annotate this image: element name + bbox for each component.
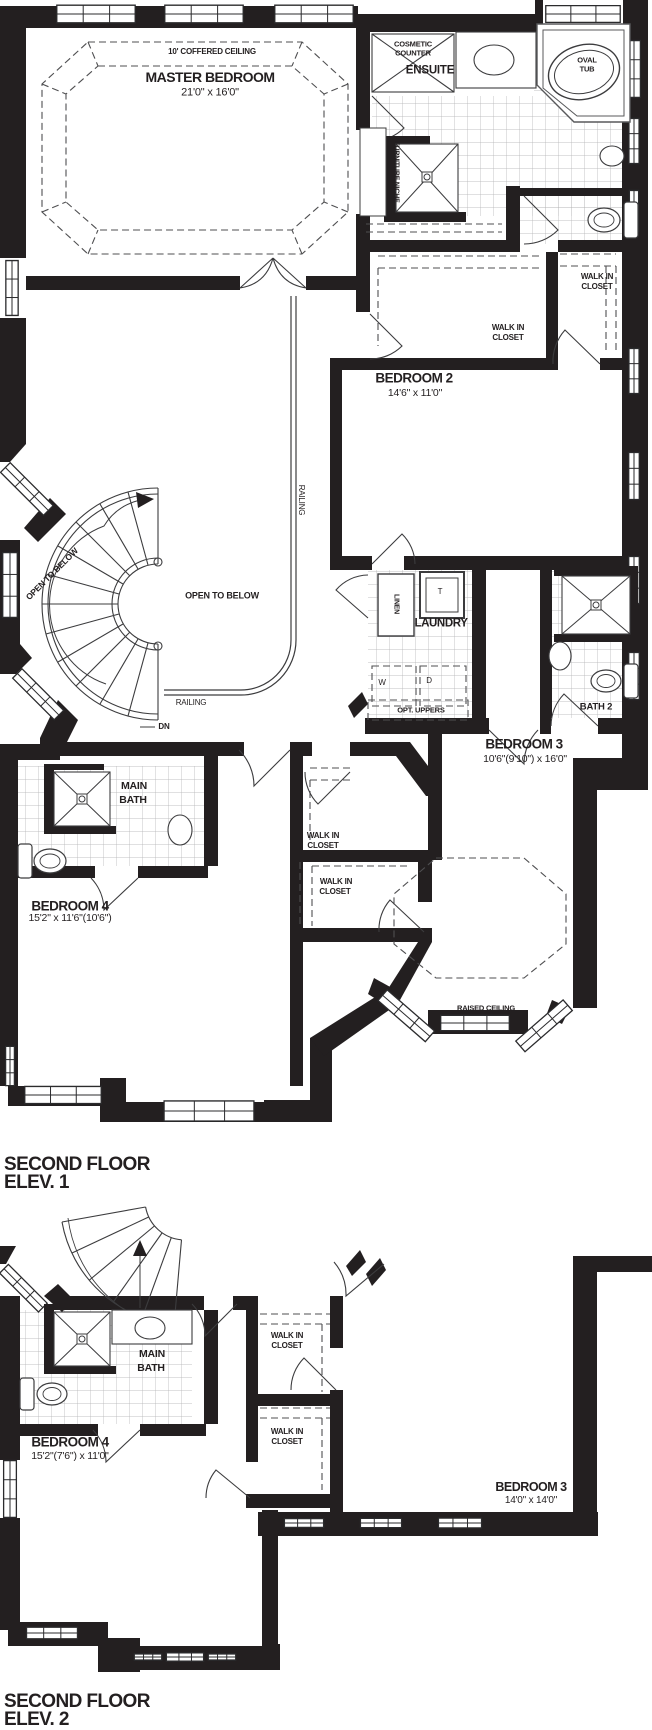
down-label: DN	[158, 723, 169, 731]
wic2-door	[206, 1470, 250, 1498]
dryer-label: D	[426, 677, 432, 685]
bath2-shower	[554, 566, 638, 642]
walk-in-closet-label: WALK IN	[271, 1428, 303, 1436]
main-bath2-vanity	[112, 1310, 192, 1344]
walk-in-closet-label: WALK IN	[581, 273, 613, 281]
walk-in-closet-label: CLOSET	[307, 842, 338, 850]
walk-in-closet-label: CLOSET	[581, 283, 612, 291]
cosmetic-counter-label: COUNTER	[395, 49, 431, 57]
main-bath-label: MAIN	[121, 781, 147, 792]
laundry-label: LAUNDRY	[415, 618, 468, 630]
railing-label: RAILING	[297, 485, 305, 516]
sink-icon	[168, 815, 192, 845]
laundry-tub-label: T	[438, 588, 443, 596]
cosmetic-counter-label: COSMETIC	[394, 40, 432, 48]
sink-icon	[474, 45, 514, 75]
main-bath-shower	[44, 764, 116, 834]
furniture-niche-label: FURNITURE NICHE	[393, 141, 400, 202]
bedroom4-door	[239, 750, 290, 786]
sink-icon	[135, 1317, 165, 1339]
open-to-below-label: OPEN TO BELOW	[185, 592, 259, 601]
opt-uppers-label: OPT. UPPERS	[397, 706, 444, 714]
wic1-door	[291, 1358, 336, 1390]
walk-in-closet-label: WALK IN	[492, 324, 524, 332]
bedroom4-dims: 15'2"(7'6") x 11'0"	[31, 1451, 108, 1462]
plan1-drawing	[0, 0, 648, 1122]
coffered-ceiling-label: 10' COFFERED CEILING	[168, 48, 256, 56]
walk-in-closet-label: CLOSET	[271, 1342, 302, 1350]
walk-in-closet-label: CLOSET	[271, 1438, 302, 1446]
walk-in-closet-label: CLOSET	[492, 334, 523, 342]
oval-tub-label: OVAL	[577, 56, 596, 64]
bedroom3-label: BEDROOM 3	[495, 1481, 566, 1494]
linen-label: LINEN	[393, 594, 400, 614]
master-bedroom-label: MASTER BEDROOM	[145, 70, 274, 84]
bedroom3-label: BEDROOM 3	[485, 737, 562, 751]
bedroom3-dims: 10'6"(9'10") x 16'0"	[483, 754, 567, 765]
bedroom3-dims: 14'0" x 14'0"	[505, 1496, 557, 1506]
bath2-label: BATH 2	[580, 702, 612, 712]
railing-label: RAILING	[176, 699, 207, 707]
walk-in-closet-label: WALK IN	[271, 1332, 303, 1340]
sink-icon	[549, 642, 571, 670]
main-bath2-shower	[44, 1304, 116, 1374]
washer-label: W	[378, 679, 385, 687]
plan2-title-line2: ELEV. 2	[4, 1711, 150, 1729]
floor-plan-drawing	[0, 0, 652, 1730]
wic1-door	[370, 314, 402, 359]
main-bath-label: BATH	[137, 1363, 165, 1374]
plan1-railing	[164, 296, 296, 695]
main-bath-label: BATH	[119, 795, 147, 806]
ensuite-label: ENSUITE	[406, 65, 454, 77]
walk-in-closet-label: CLOSET	[319, 888, 350, 896]
wic4-door	[379, 900, 424, 932]
sink-icon	[600, 146, 624, 166]
plan1-title-line2: ELEV. 1	[4, 1174, 150, 1192]
master-double-doors	[240, 258, 306, 288]
oval-tub-label: TUB	[580, 65, 595, 73]
bedroom4-label: BEDROOM 4	[31, 1435, 108, 1449]
raised-ceiling-label: RAISED CEILING	[457, 1004, 515, 1012]
bedroom2-label: BEDROOM 2	[375, 371, 452, 385]
walk-in-closet-label: WALK IN	[320, 878, 352, 886]
wall-break-icon	[346, 1250, 366, 1276]
bedroom2-dims: 14'6" x 11'0"	[388, 388, 442, 399]
laundry-door	[336, 575, 368, 618]
wall-break-icon	[366, 1258, 386, 1286]
wic3-door	[305, 772, 350, 804]
bedroom4-label: BEDROOM 4	[31, 899, 108, 913]
bedroom4-dims: 15'2" x 11'6"(10'6")	[28, 913, 111, 924]
floor-plan-page: 10' COFFERED CEILING MASTER BEDROOM 21'0…	[0, 0, 652, 1730]
walk-in-closet-label: WALK IN	[307, 832, 339, 840]
ensuite-vanity	[456, 32, 536, 88]
main-bath-label: MAIN	[139, 1349, 165, 1360]
plan2-title: SECOND FLOOR ELEV. 2	[4, 1693, 150, 1729]
wic2-door	[553, 330, 600, 364]
master-bedroom-dims: 21'0" x 16'0"	[181, 88, 239, 99]
plan1-stairs	[42, 488, 162, 727]
plan1-title: SECOND FLOOR ELEV. 1	[4, 1156, 150, 1192]
furniture-niche	[360, 128, 386, 216]
